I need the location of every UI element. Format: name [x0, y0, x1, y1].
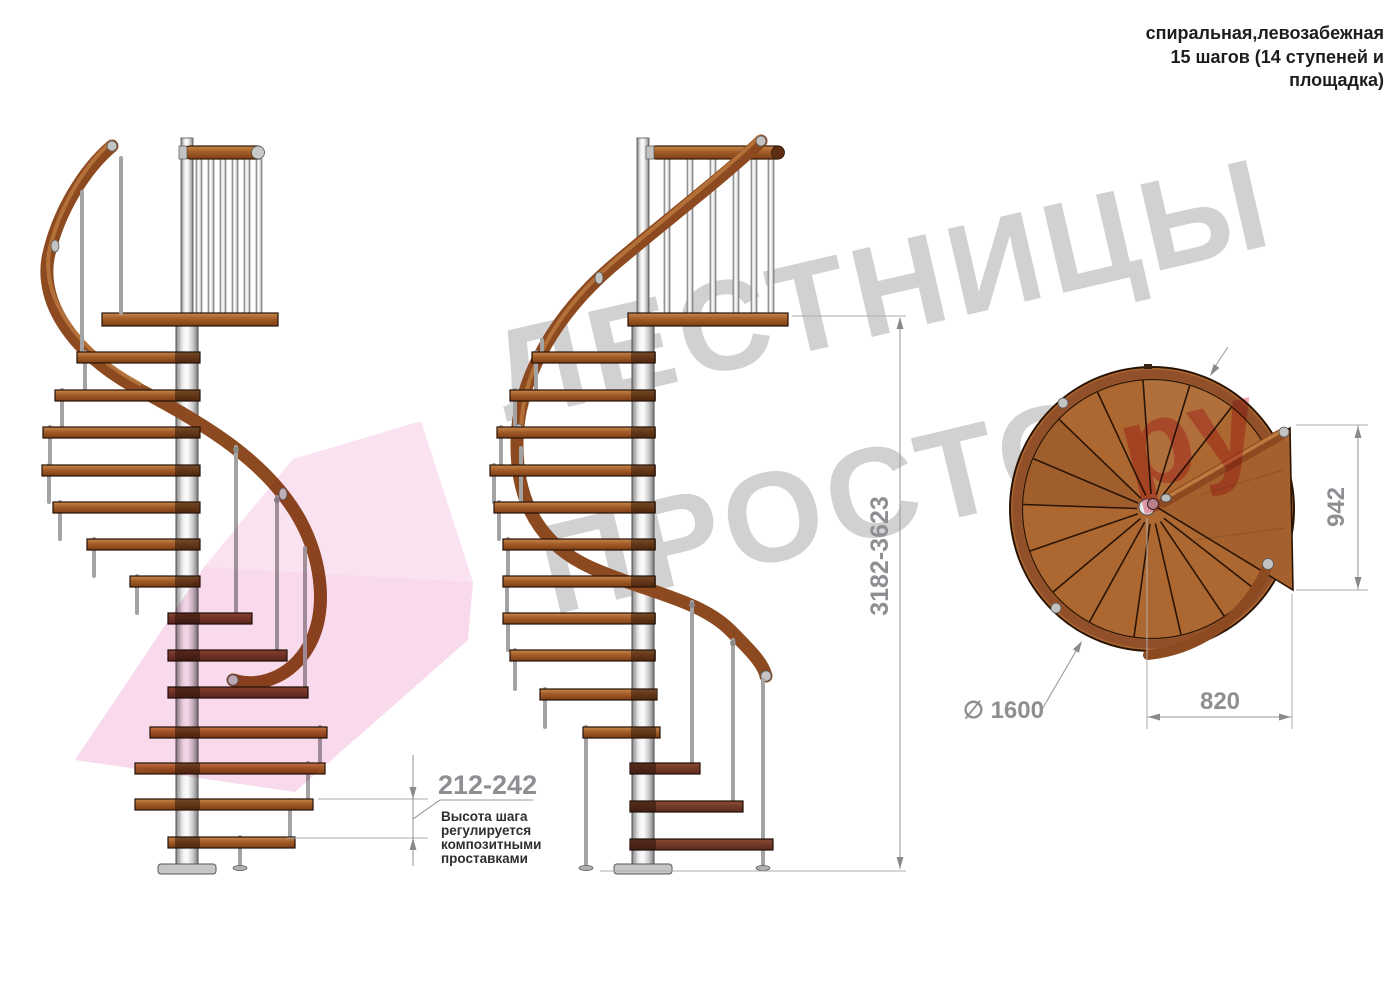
landing-platform: [102, 313, 278, 326]
staircase-drawing: ЛЕСТНИЦЫ ПРОСТО: [0, 0, 1400, 1000]
center-pole: [181, 138, 193, 318]
logo-shape-upper: [204, 421, 473, 582]
dimension-diameter: ∅ 1600: [963, 697, 1044, 724]
pole-base-plate: [158, 864, 216, 874]
title-line2: 15 шагов (14 ступеней и: [1024, 46, 1384, 70]
dimension-landing-offset: 820: [1200, 688, 1240, 715]
step-height-note-line2: регулируется: [441, 823, 531, 838]
dimension-landing-depth: 942: [1323, 487, 1350, 527]
drawing-canvas: ЛЕСТНИЦЫ ПРОСТО: [0, 0, 1400, 1000]
step-height-note-line4: проставками: [441, 851, 528, 866]
step-height-note-line3: композитными: [441, 837, 541, 852]
railing-top-rail: [650, 146, 784, 159]
dimension-step-height: 212-242: [438, 770, 537, 800]
center-pole: [637, 138, 649, 318]
drawing-title: спиральная,левозабежная 15 шагов (14 сту…: [1024, 22, 1384, 93]
landing-platform: [628, 313, 788, 326]
title-line3: площадка): [1024, 69, 1384, 93]
step-height-note-line1: Высота шага: [441, 809, 528, 824]
pole-base-plate: [614, 864, 672, 874]
dimension-total-height: 3182-3623: [866, 496, 894, 616]
title-line1: спиральная,левозабежная: [1024, 22, 1384, 46]
